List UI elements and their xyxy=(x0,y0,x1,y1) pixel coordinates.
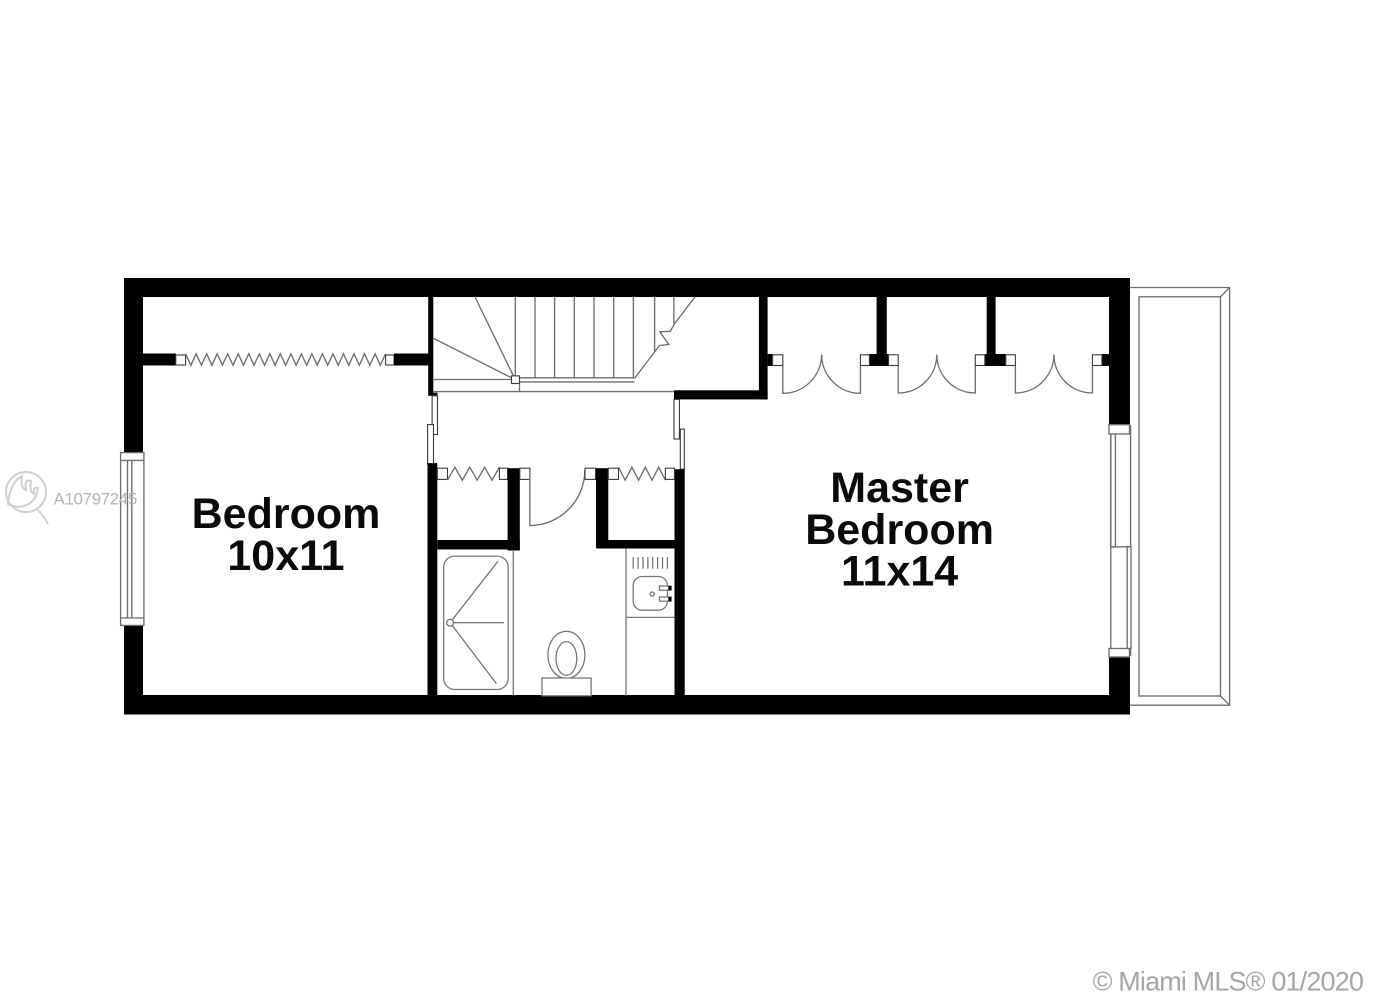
svg-text:A10797245: A10797245 xyxy=(54,490,137,509)
svg-text:Master: Master xyxy=(830,464,969,512)
svg-text:10x11: 10x11 xyxy=(227,532,344,580)
svg-text:© Miami MLS® 01/2020: © Miami MLS® 01/2020 xyxy=(1093,967,1363,997)
svg-text:11x14: 11x14 xyxy=(841,548,958,596)
svg-text:Bedroom: Bedroom xyxy=(192,490,381,538)
